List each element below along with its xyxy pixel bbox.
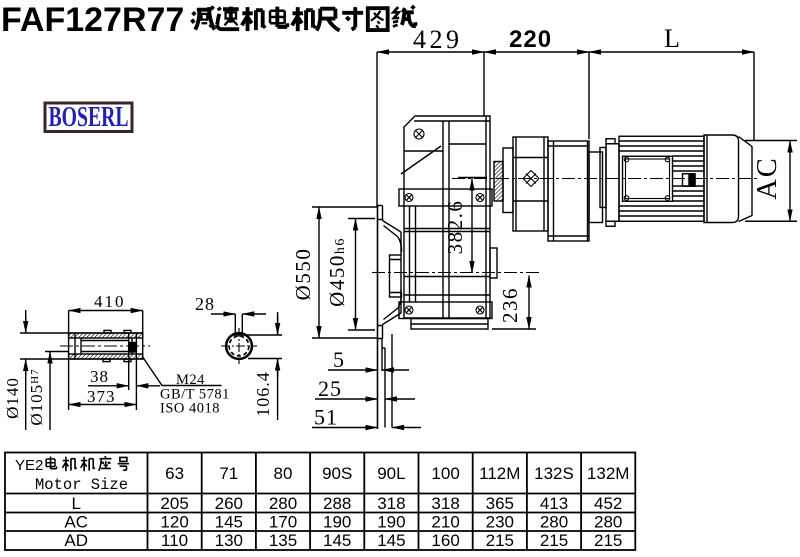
svg-text:Ø550: Ø550 — [291, 248, 315, 301]
svg-text:38: 38 — [90, 367, 109, 386]
svg-text:429: 429 — [413, 25, 463, 54]
svg-text:190: 190 — [323, 513, 351, 532]
svg-text:170: 170 — [269, 513, 297, 532]
svg-text:280: 280 — [594, 513, 622, 532]
svg-text:373: 373 — [87, 387, 116, 406]
svg-text:145: 145 — [377, 531, 405, 550]
svg-text:145: 145 — [323, 531, 351, 550]
svg-text:130: 130 — [215, 531, 243, 550]
svg-text:5: 5 — [333, 347, 345, 372]
svg-text:236: 236 — [498, 287, 522, 323]
svg-text:Ø105H7: Ø105H7 — [27, 368, 46, 425]
svg-text:28: 28 — [195, 294, 215, 314]
svg-text:413: 413 — [540, 494, 568, 513]
svg-text:230: 230 — [486, 513, 514, 532]
svg-text:BOSERL: BOSERL — [49, 101, 129, 133]
svg-text:452: 452 — [594, 494, 622, 513]
svg-text:160: 160 — [431, 531, 459, 550]
svg-text:110: 110 — [161, 531, 188, 550]
svg-text:288: 288 — [323, 494, 351, 513]
svg-text:YE2: YE2 — [15, 457, 43, 474]
svg-text:410: 410 — [94, 292, 126, 311]
svg-text:51: 51 — [314, 405, 338, 430]
svg-text:AD: AD — [64, 531, 88, 550]
svg-text:71: 71 — [219, 464, 238, 483]
svg-text:365: 365 — [486, 494, 514, 513]
svg-text:318: 318 — [431, 494, 459, 513]
svg-text:120: 120 — [160, 513, 188, 532]
svg-text:90S: 90S — [322, 464, 352, 483]
svg-text:25: 25 — [318, 376, 342, 401]
svg-text:135: 135 — [269, 531, 297, 550]
svg-text:L: L — [664, 24, 683, 53]
svg-text:132M: 132M — [587, 464, 630, 483]
svg-text:100: 100 — [431, 464, 459, 483]
svg-text:210: 210 — [431, 513, 459, 532]
svg-text:90L: 90L — [377, 464, 405, 483]
svg-text:FAF127R77: FAF127R77 — [1, 1, 184, 39]
svg-text:280: 280 — [269, 494, 297, 513]
svg-text:AC: AC — [64, 513, 88, 532]
svg-text:205: 205 — [160, 494, 188, 513]
svg-text:215: 215 — [594, 531, 622, 550]
svg-text:112M: 112M — [479, 464, 520, 483]
svg-text:132S: 132S — [534, 464, 574, 483]
svg-text:318: 318 — [377, 494, 405, 513]
svg-text:63: 63 — [165, 464, 184, 483]
svg-text:220: 220 — [509, 26, 552, 53]
svg-text:382.6: 382.6 — [443, 200, 467, 255]
svg-text:280: 280 — [540, 513, 568, 532]
svg-text:190: 190 — [377, 513, 405, 532]
svg-text:106.4: 106.4 — [253, 371, 273, 417]
svg-text:AC: AC — [752, 156, 783, 200]
svg-text:145: 145 — [215, 513, 243, 532]
svg-text:Ø450h6: Ø450h6 — [325, 237, 349, 307]
svg-text:80: 80 — [274, 464, 293, 483]
svg-text:260: 260 — [215, 494, 243, 513]
svg-text:L: L — [71, 494, 80, 513]
svg-text:Ø140: Ø140 — [3, 377, 22, 419]
svg-text:Motor Size: Motor Size — [35, 476, 128, 494]
svg-text:215: 215 — [486, 531, 514, 550]
svg-text:ISO 4018: ISO 4018 — [160, 401, 220, 417]
svg-text:215: 215 — [540, 531, 568, 550]
